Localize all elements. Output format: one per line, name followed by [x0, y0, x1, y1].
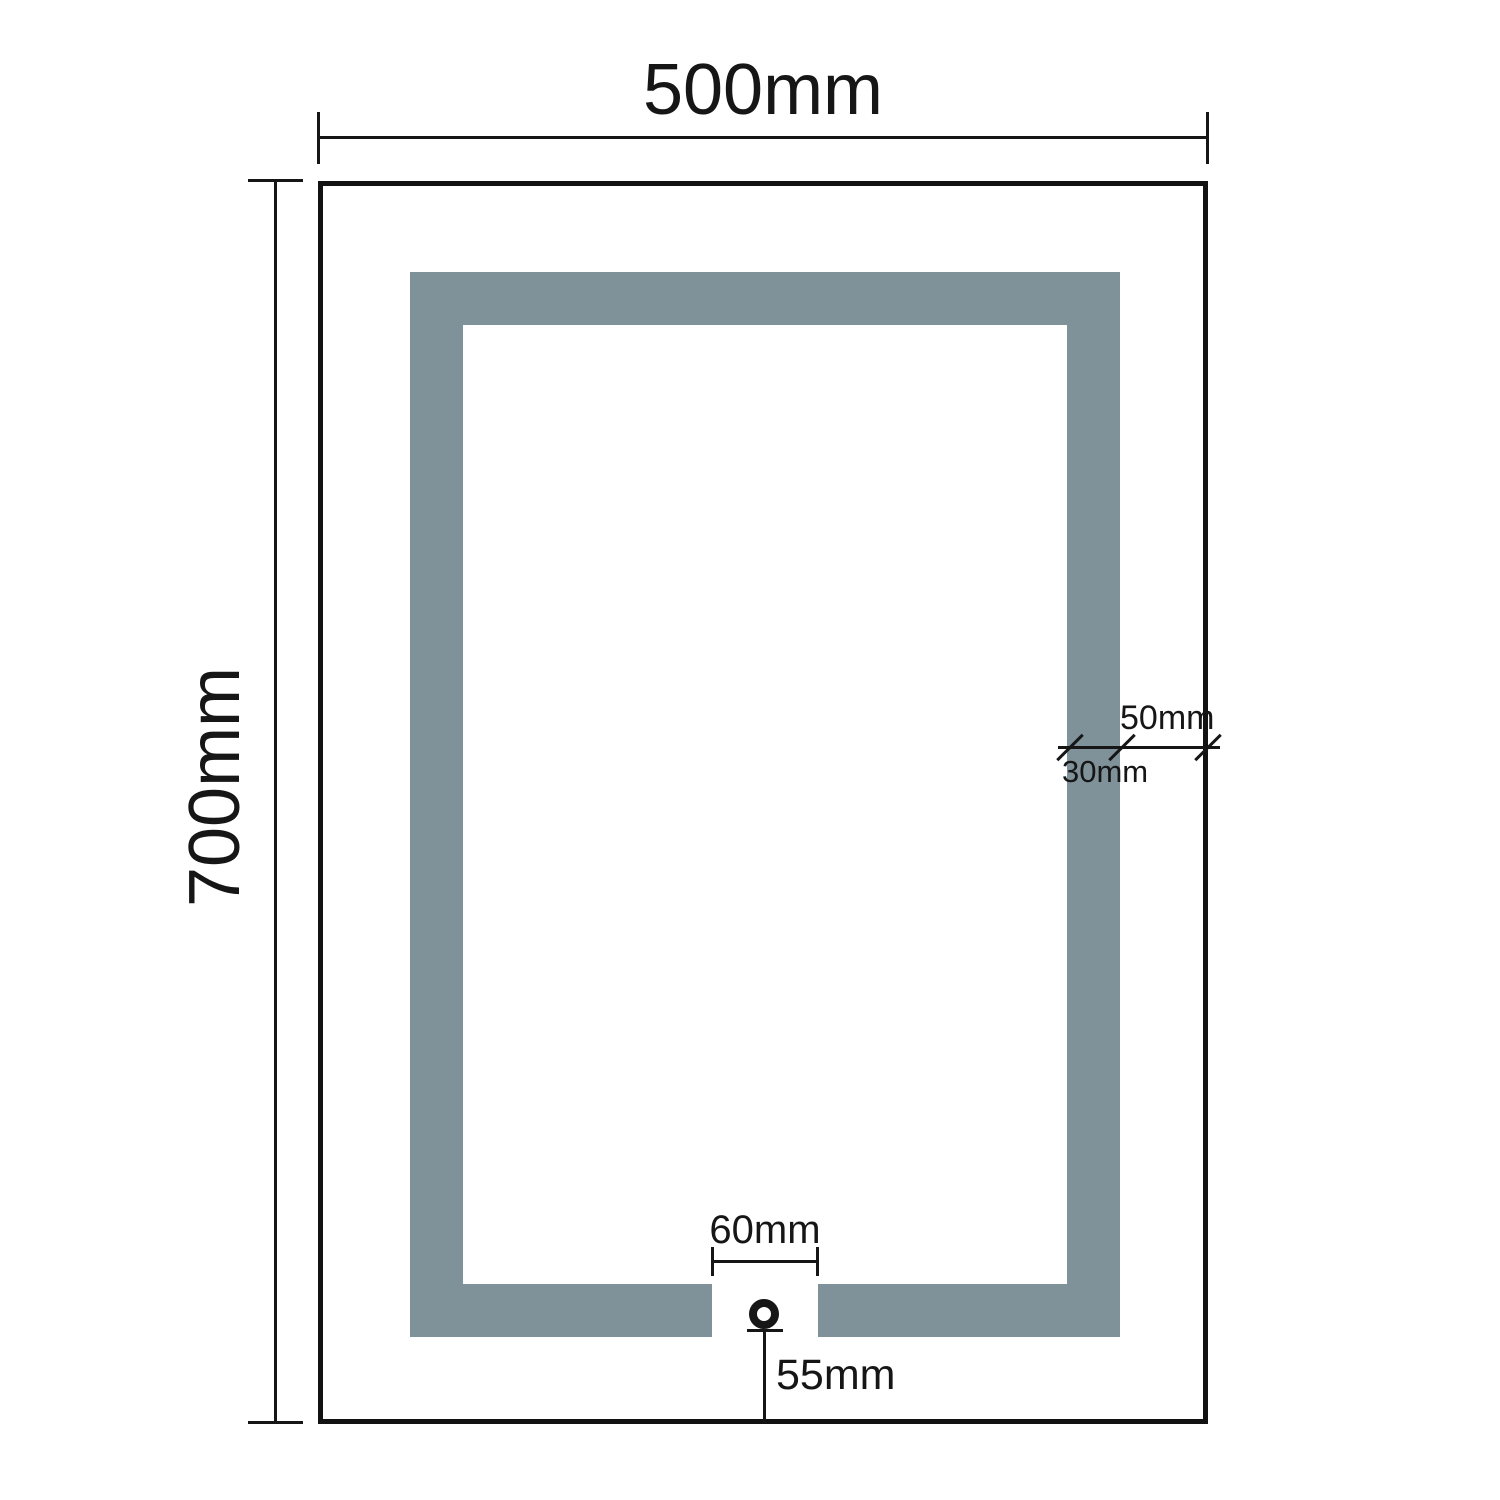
dim-band-line	[1058, 746, 1220, 749]
dim-gap-line	[712, 1260, 818, 1263]
dimension-drawing: 500mm 700mm 50mm 30mm 60mm 55mm	[0, 0, 1500, 1500]
dim-height-label: 700mm	[179, 667, 251, 907]
sensor-circle-icon	[749, 1299, 779, 1329]
dim-width-line	[318, 136, 1208, 139]
led-band	[410, 272, 1120, 1337]
dim-edge-offset-label: 50mm	[1120, 701, 1214, 735]
dim-height-tick-top	[248, 179, 303, 182]
dim-band-thickness-label: 30mm	[1062, 756, 1148, 787]
sensor-leader-line	[763, 1331, 766, 1423]
dim-height-tick-bottom	[248, 1421, 303, 1424]
dim-gap-width-label: 60mm	[709, 1210, 820, 1250]
dim-width-label: 500mm	[318, 54, 1208, 126]
dim-sensor-offset-label: 55mm	[776, 1354, 895, 1397]
dim-height-line	[274, 181, 277, 1424]
